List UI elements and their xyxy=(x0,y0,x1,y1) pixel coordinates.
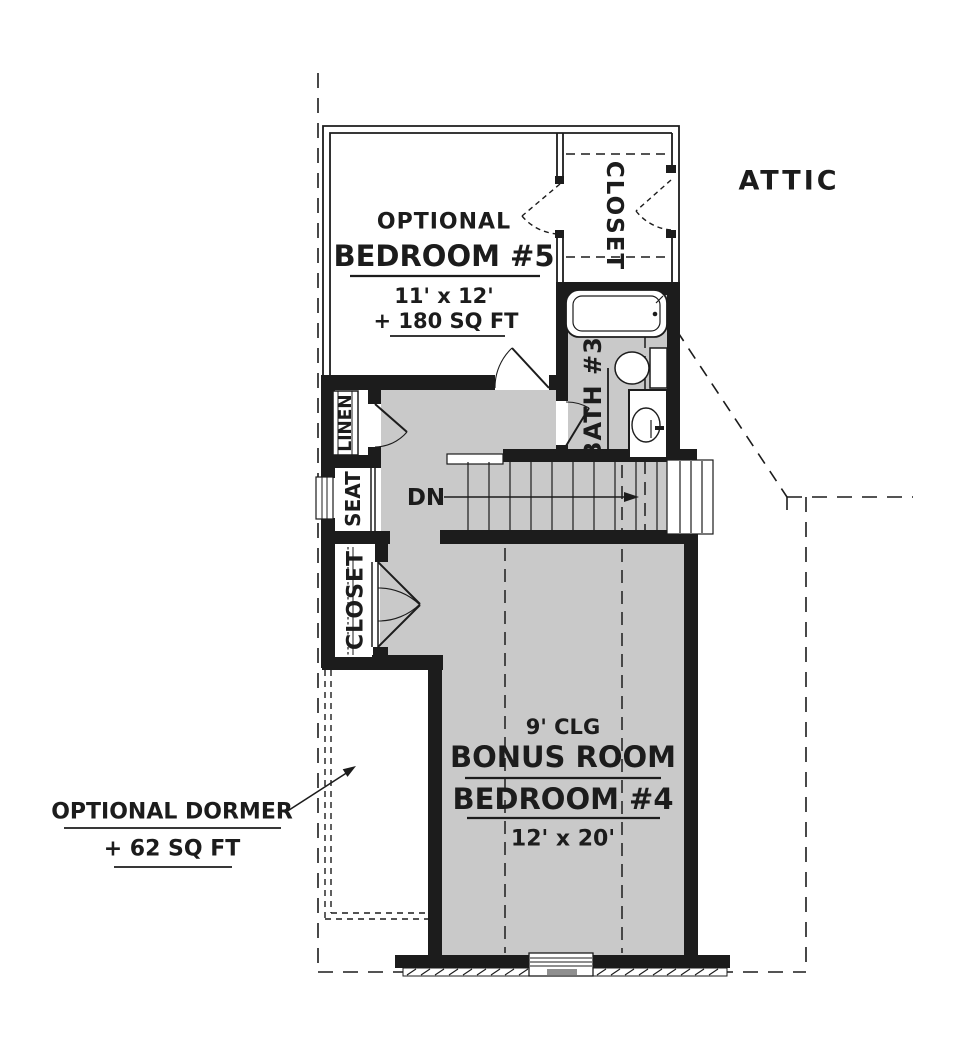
bonus-south-wall-left xyxy=(395,955,530,968)
closet-door-arc-right xyxy=(636,211,671,230)
hall-closet-label: CLOSET xyxy=(344,550,369,650)
linen-door-stub-bottom xyxy=(368,447,381,461)
bedroom5-area-label: + 180 SQ FT xyxy=(373,309,519,333)
seat-window xyxy=(316,477,333,519)
bedroom5-name-label: BEDROOM #5 xyxy=(333,239,554,273)
closet-door-leaf-left xyxy=(522,184,560,216)
bath3-label: BATH #3 xyxy=(579,336,607,460)
closet-door-leaf-right xyxy=(636,180,671,211)
closet-south-wall xyxy=(322,655,443,670)
stairs-south-wall xyxy=(440,530,698,544)
sink xyxy=(632,408,660,442)
bottom-window xyxy=(529,953,593,976)
closet-door-arc-left xyxy=(522,216,560,234)
dormer-name-label: OPTIONAL DORMER xyxy=(51,800,293,825)
floor-plan: ATTIC OPTIONAL BEDROOM #5 11' x 12' + 18… xyxy=(0,0,980,1060)
bonus-south-wall-right xyxy=(593,955,730,968)
bonus-room-label: BONUS ROOM xyxy=(450,740,676,774)
dormer-outline-dashed xyxy=(325,670,428,919)
stairs-handrail xyxy=(447,454,503,464)
bonus-dims-label: 12' x 20' xyxy=(511,827,615,852)
closet-dashed-doors xyxy=(522,180,671,234)
bedroom5-door-arc xyxy=(495,348,512,388)
toilet-tank xyxy=(650,348,667,388)
bath-east-wall xyxy=(667,282,680,461)
seat-label: SEAT xyxy=(341,471,365,527)
bedroom5-optional-label: OPTIONAL xyxy=(377,210,511,235)
bathtub-drain xyxy=(653,312,658,317)
dormer-area-label: + 62 SQ FT xyxy=(104,837,241,862)
toilet-bowl xyxy=(615,352,649,384)
bedroom5-door-leaf xyxy=(512,348,549,388)
dormer-callout-arrow xyxy=(286,766,356,812)
bedroom5-south-wall xyxy=(322,375,495,390)
bonus-ceiling-label: 9' CLG xyxy=(526,715,600,739)
floor-plan-svg: ATTIC OPTIONAL BEDROOM #5 11' x 12' + 18… xyxy=(0,0,980,1060)
bottom-window-sill-tick xyxy=(547,969,577,975)
attic-label: ATTIC xyxy=(738,166,839,197)
bedroom4-label: BEDROOM #4 xyxy=(452,782,673,816)
bedroom5-dims-label: 11' x 12' xyxy=(394,284,493,308)
dormer-arrow-head xyxy=(343,766,356,777)
closet-top-label: CLOSET xyxy=(601,161,627,271)
hall-floor xyxy=(381,390,556,454)
bonus-east-wall xyxy=(684,530,698,955)
bathtub xyxy=(566,290,667,337)
sink-faucet xyxy=(655,426,664,430)
stairs-dn-label: DN xyxy=(407,485,445,511)
stairs-open-treads xyxy=(667,460,713,534)
linen-door-stub-top xyxy=(368,390,381,404)
hall-closet-stub-top xyxy=(375,533,388,562)
hall-passage-floor xyxy=(380,531,447,657)
bonus-west-wall xyxy=(428,657,442,955)
linen-label: LINEN xyxy=(336,394,356,451)
